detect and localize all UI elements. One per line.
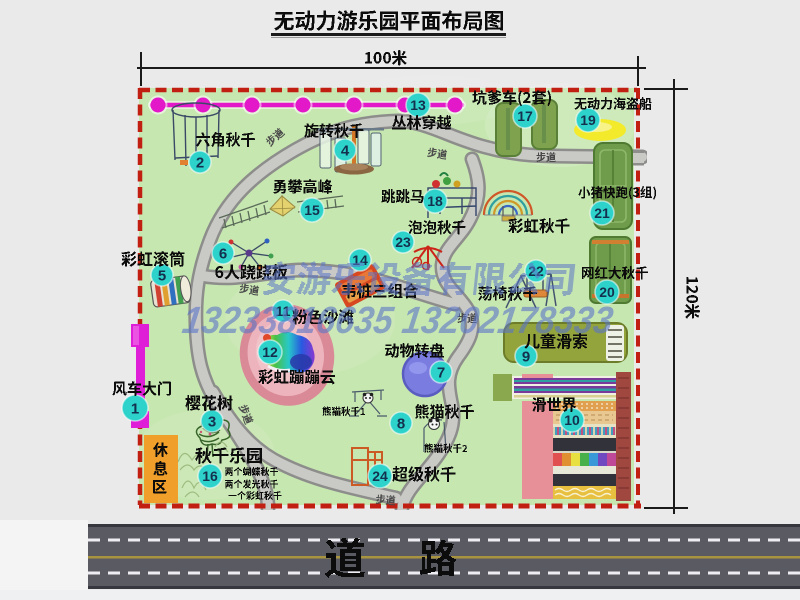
svg-text:10: 10 [564,412,580,428]
svg-text:13: 13 [410,97,426,113]
svg-text:24: 24 [372,468,388,484]
svg-text:9: 9 [522,348,530,365]
svg-text:4: 4 [341,142,350,159]
svg-text:17: 17 [517,108,533,124]
svg-text:20: 20 [599,284,615,300]
svg-text:6: 6 [219,245,227,262]
svg-text:18: 18 [427,193,443,209]
svg-text:12: 12 [262,344,278,360]
svg-text:5: 5 [158,267,166,284]
svg-text:19: 19 [580,112,596,128]
svg-text:23: 23 [395,234,411,250]
svg-text:8: 8 [397,415,405,432]
svg-text:16: 16 [202,468,218,484]
svg-text:13233816635 13202178333: 13233816635 13202178333 [180,299,616,342]
svg-text:2: 2 [196,154,204,171]
svg-text:7: 7 [437,364,445,381]
svg-text:21: 21 [594,205,610,221]
svg-text:15: 15 [304,202,320,218]
svg-text:3: 3 [208,413,216,430]
svg-text:1: 1 [131,400,139,417]
